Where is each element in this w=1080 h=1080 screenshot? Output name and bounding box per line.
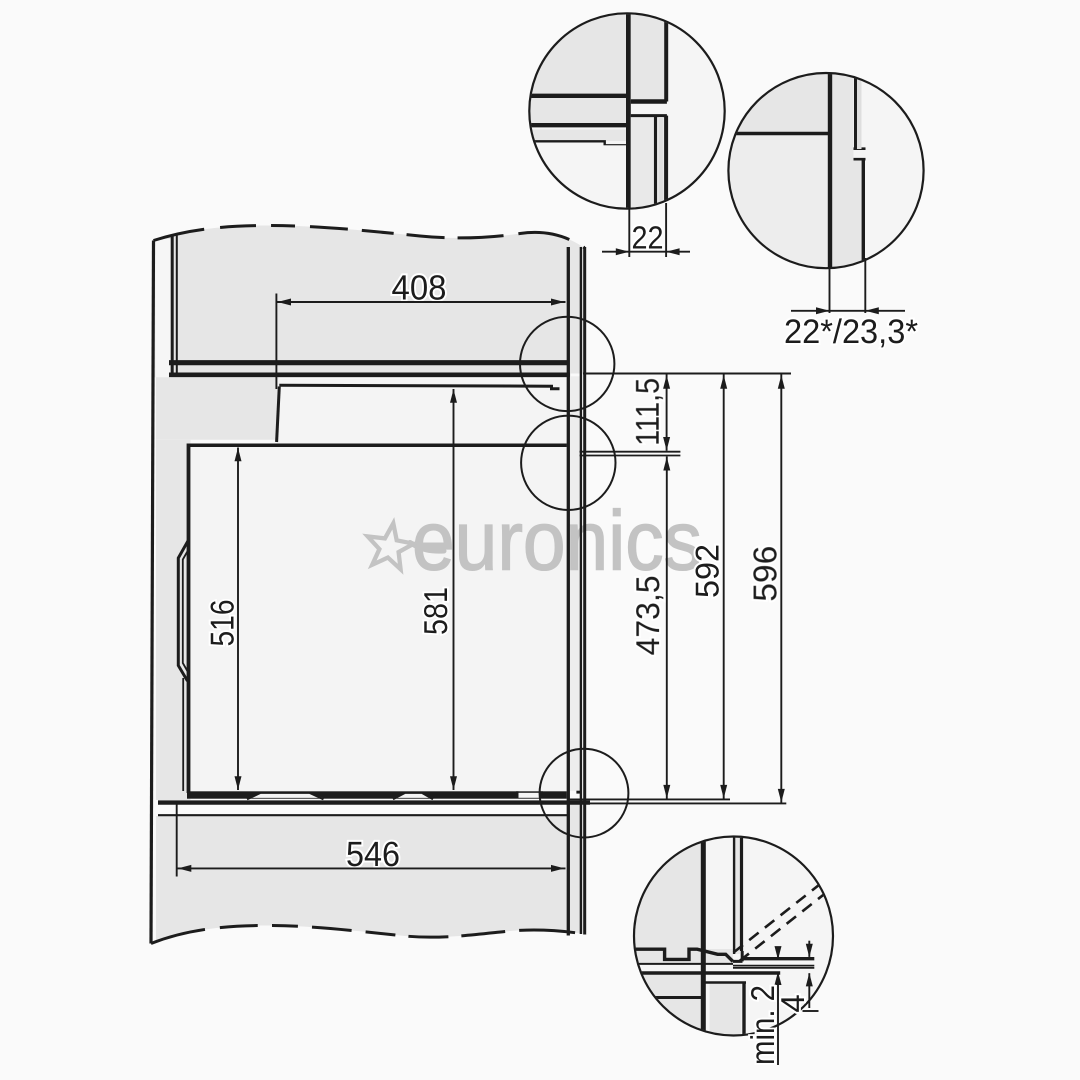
svg-text:581: 581 [417,587,454,635]
svg-text:596: 596 [747,546,784,602]
svg-text:111,5: 111,5 [629,378,666,446]
svg-text:473,5: 473,5 [629,575,666,655]
svg-text:22: 22 [632,220,664,256]
svg-text:592: 592 [689,544,726,598]
svg-text:4: 4 [774,994,811,1012]
svg-text:516: 516 [204,600,241,647]
svg-text:22*/23,3*: 22*/23,3* [784,313,918,351]
